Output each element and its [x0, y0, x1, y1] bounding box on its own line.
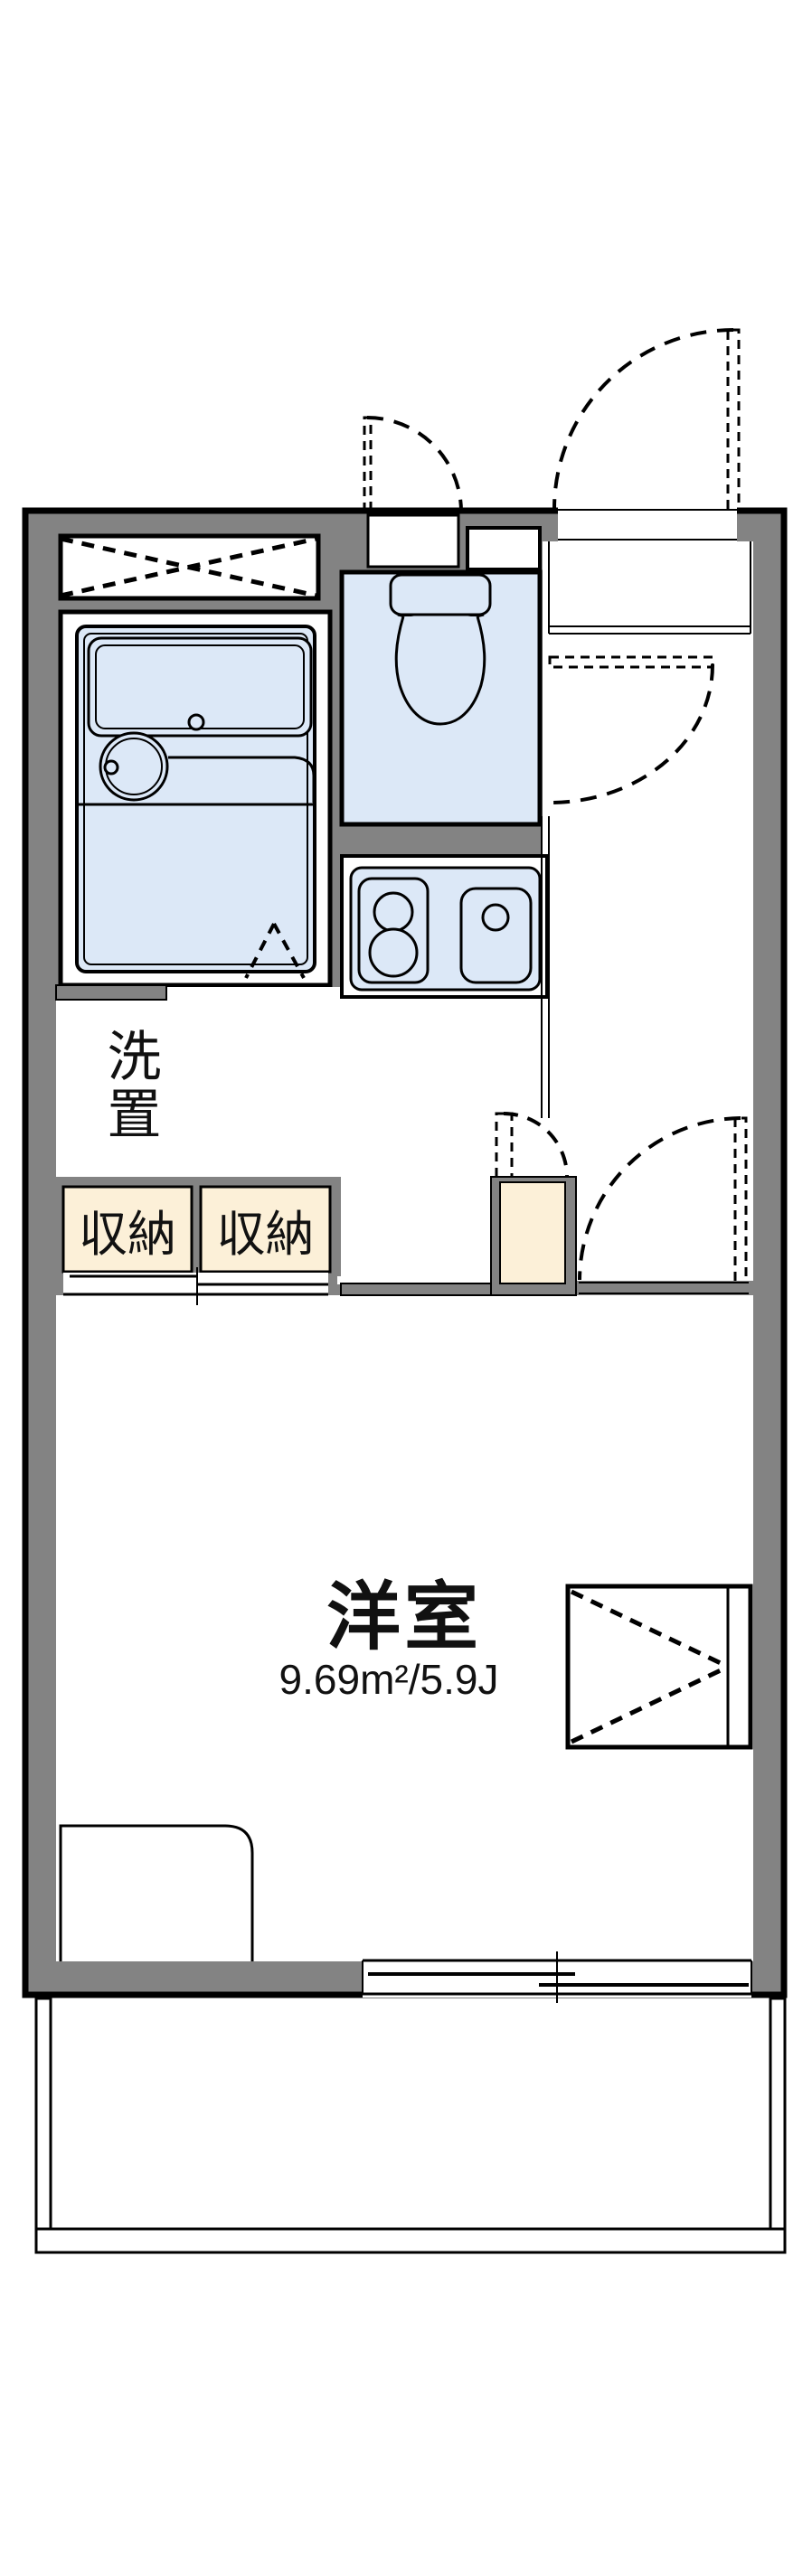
floor-plan: 洗置 収納 収納 洋室 9.69m²/5.9J — [0, 0, 812, 2576]
basin-faucet-icon — [105, 761, 118, 774]
balcony-rail-left — [36, 1998, 51, 2230]
entrance-door-leaf — [728, 330, 739, 509]
balcony-rail-bottom — [36, 2229, 785, 2252]
counter-box — [568, 1586, 751, 1747]
toilet-tank — [391, 575, 490, 615]
entrance-door-arc — [554, 330, 733, 509]
room-north-wall — [341, 1283, 491, 1295]
pillar-storage — [500, 1182, 565, 1283]
washer-place-label: 洗置 — [61, 996, 199, 1175]
western-room-area-label: 9.69m²/5.9J — [217, 1652, 561, 1706]
storage-right-label: 収納 — [201, 1187, 330, 1272]
toilet-bowl — [396, 616, 485, 724]
bed-outline — [61, 1826, 252, 1961]
bathroom-unit — [77, 626, 315, 978]
burner-icon — [370, 929, 417, 976]
entry-hall-floor — [543, 541, 753, 1281]
entrance-opening — [558, 507, 737, 541]
bathtub-drain-icon — [189, 715, 203, 729]
floor-plan-drawing — [0, 0, 812, 2576]
wall-niche-right — [467, 528, 540, 569]
balcony-rail-right — [770, 1998, 785, 2230]
utility-door-leaf — [364, 418, 371, 512]
wall-niche-left — [368, 515, 458, 567]
burner-icon — [374, 893, 412, 931]
kitchen-unit — [342, 856, 547, 997]
western-room-label: 洋室 — [269, 1565, 540, 1655]
sink-drain-icon — [483, 905, 508, 930]
balcony — [36, 1998, 785, 2252]
kitchen-sink — [461, 888, 531, 982]
storage-left-label: 収納 — [63, 1187, 192, 1272]
toilet-room — [342, 572, 540, 824]
utility-door-arc — [367, 418, 461, 512]
